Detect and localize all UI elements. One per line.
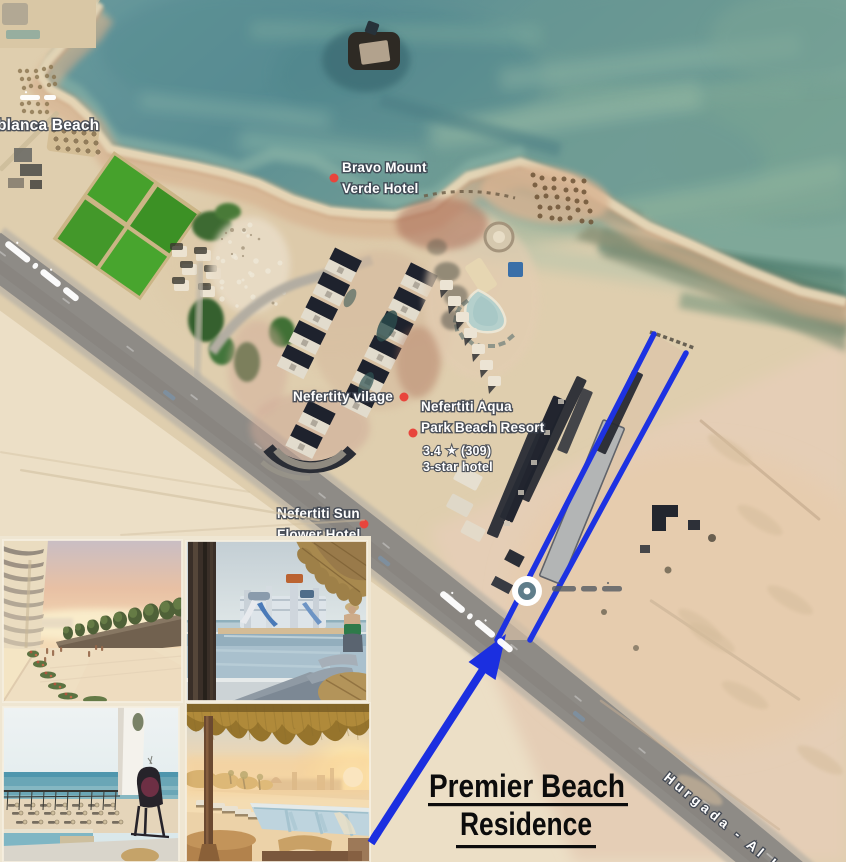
svg-text:Bravo Mount: Bravo Mount [342, 160, 427, 175]
svg-text:★: ★ [447, 445, 457, 457]
svg-text:(309): (309) [461, 444, 491, 458]
svg-text:Residence: Residence [460, 806, 592, 842]
svg-text:Verde Hotel: Verde Hotel [342, 181, 418, 196]
svg-text:3.4: 3.4 [423, 444, 441, 458]
svg-text:Park Beach Resort: Park Beach Resort [421, 420, 545, 435]
svg-text:Nefertity vilage: Nefertity vilage [293, 389, 393, 404]
svg-text:Premier Beach: Premier Beach [429, 768, 625, 804]
svg-text:3-star hotel: 3-star hotel [423, 460, 493, 474]
svg-text:blanca Beach: blanca Beach [0, 117, 99, 134]
svg-text:Nefertiti Aqua: Nefertiti Aqua [421, 399, 512, 414]
